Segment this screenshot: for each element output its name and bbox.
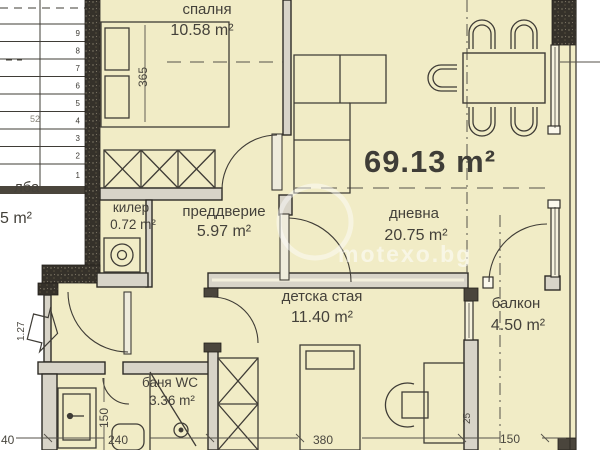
dim-40: 40 (1, 433, 15, 447)
living-area: 20.75 m² (384, 227, 448, 244)
svg-text:2: 2 (76, 152, 81, 161)
kids-label: детска стая (282, 288, 363, 305)
stairs-area: 5 m² (0, 210, 33, 227)
svg-text:7: 7 (76, 64, 81, 73)
dim-240: 240 (108, 433, 128, 447)
dim-150-bath: 150 (97, 408, 111, 428)
stairs-label: лба (14, 179, 40, 196)
svg-text:4: 4 (76, 117, 81, 126)
bath-area: 3.36 m² (149, 393, 195, 408)
dim-380: 380 (313, 433, 333, 447)
vestibule-label: преддверие (182, 203, 265, 220)
closet-area: 0.72 m² (110, 217, 156, 232)
stair-level-mark: 52 (30, 114, 40, 124)
floor-plan-drawing: 9 8 7 6 5 4 3 2 1 52 лба 5 m² (0, 0, 600, 450)
svg-text:9: 9 (76, 29, 81, 38)
total-area: 69.13 m² (364, 144, 496, 179)
stair-step-numbers: 9 8 7 6 5 4 3 2 1 (76, 29, 81, 180)
watermark-text: motexo.bg (338, 241, 472, 267)
bath-label: баня WC (142, 375, 198, 390)
svg-text:3: 3 (76, 134, 81, 143)
bedroom-label: спалня (182, 1, 231, 18)
staircase (0, 0, 85, 194)
vestibule-area: 5.97 m² (197, 223, 252, 240)
dim-150-balcony: 150 (500, 432, 520, 446)
balcony-label: балкон (492, 295, 541, 312)
floor-plan: 9 8 7 6 5 4 3 2 1 52 лба 5 m² (0, 0, 600, 450)
svg-text:5: 5 (76, 99, 81, 108)
bedroom-area: 10.58 m² (170, 22, 234, 39)
dim-25: 25 (462, 412, 473, 424)
stair-landing-edge (0, 186, 85, 194)
svg-text:8: 8 (76, 47, 81, 56)
dim-127: 1.27 (16, 321, 27, 341)
living-label: дневна (389, 205, 440, 222)
kids-area: 11.40 m² (291, 309, 354, 326)
balcony-area: 4.50 m² (491, 317, 546, 334)
dim-365: 365 (136, 67, 150, 87)
closet-label: килер (113, 200, 149, 215)
svg-text:6: 6 (76, 82, 81, 91)
svg-text:1: 1 (76, 171, 81, 180)
